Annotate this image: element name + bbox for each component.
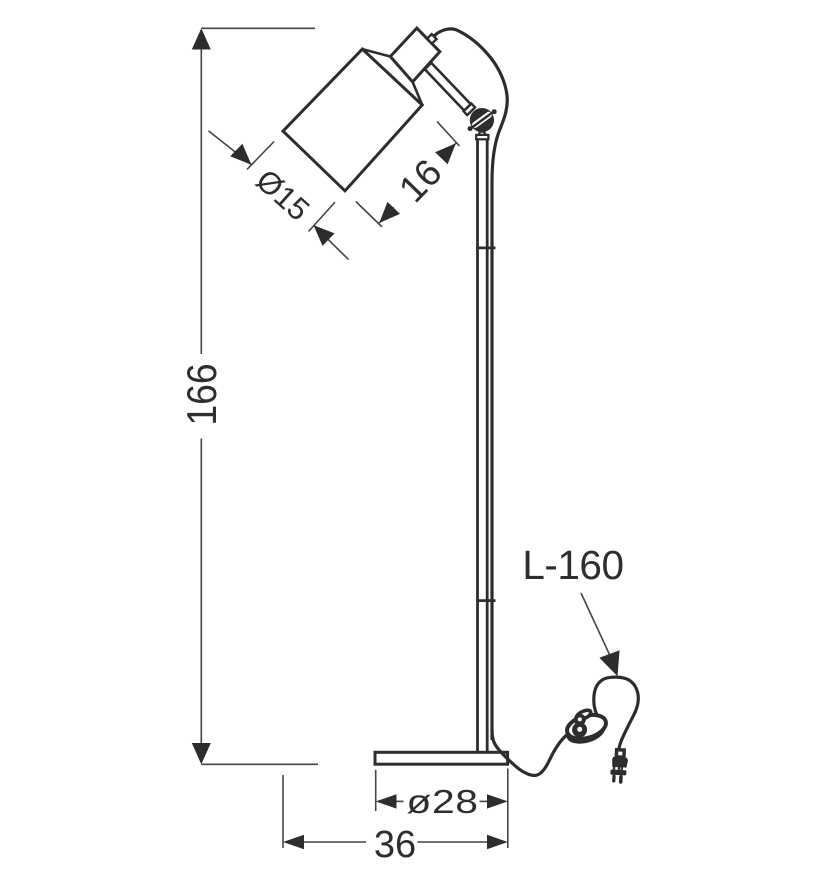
svg-text:36: 36 xyxy=(374,824,416,866)
svg-text:ø28: ø28 xyxy=(406,783,478,821)
svg-text:166: 166 xyxy=(179,363,225,425)
svg-text:L-160: L-160 xyxy=(522,542,623,588)
